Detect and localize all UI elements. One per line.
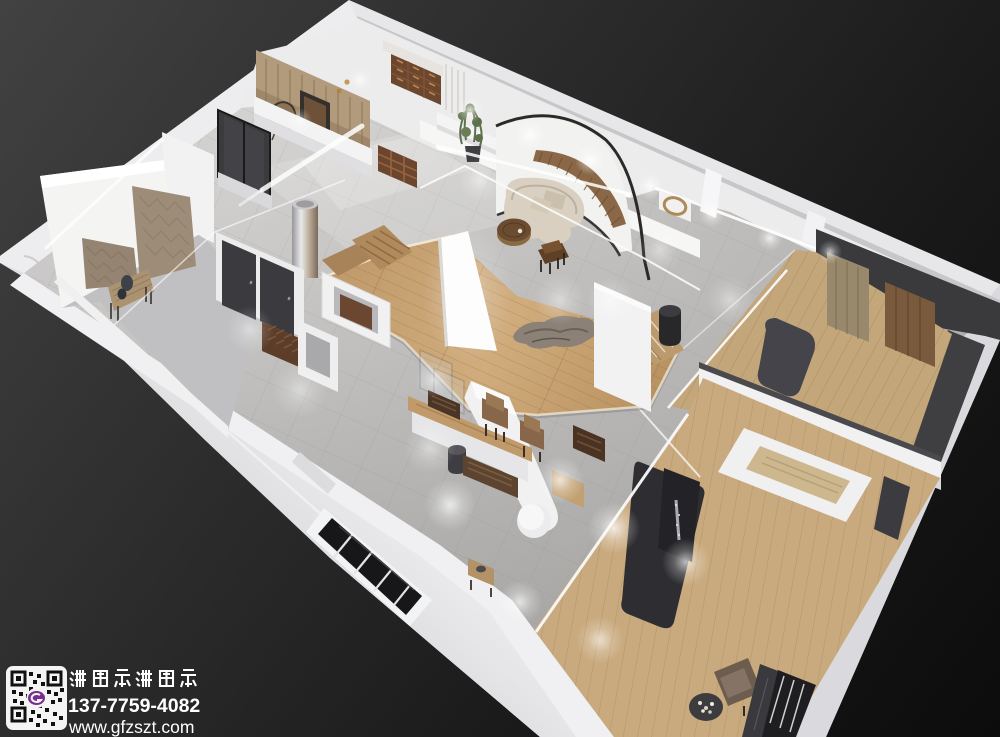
svg-text:137-7759-4082: 137-7759-4082: [68, 695, 200, 717]
svg-text:www.gfzszt.com: www.gfzszt.com: [68, 717, 194, 737]
